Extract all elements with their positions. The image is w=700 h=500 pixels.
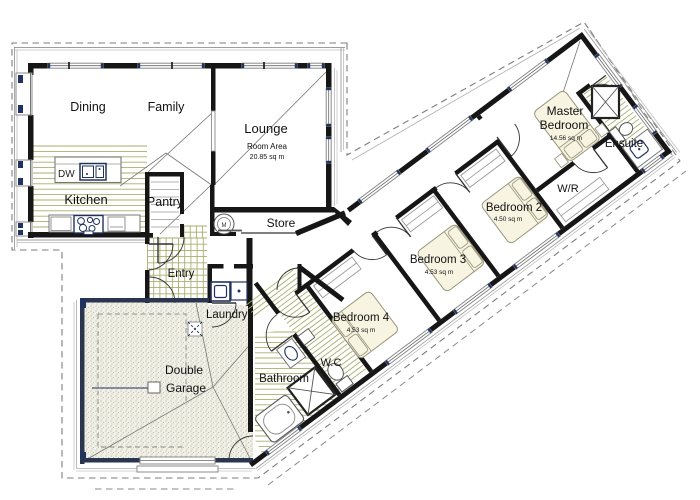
svg-text:Double: Double — [165, 363, 203, 377]
svg-text:Entry: Entry — [168, 268, 195, 280]
svg-text:DW: DW — [58, 169, 75, 180]
svg-text:Bedroom 4: Bedroom 4 — [333, 312, 390, 324]
svg-text:Garage: Garage — [166, 381, 206, 395]
svg-text:Kitchen: Kitchen — [64, 192, 107, 207]
svg-text:Bedroom 3: Bedroom 3 — [410, 254, 466, 266]
svg-text:Dining: Dining — [70, 100, 105, 114]
svg-text:Room Area: Room Area — [247, 142, 288, 151]
svg-text:Bedroom 2: Bedroom 2 — [486, 202, 542, 214]
svg-text:4.53 sq m: 4.53 sq m — [425, 269, 454, 276]
svg-text:M: M — [222, 223, 227, 229]
svg-text:W/R: W/R — [557, 183, 578, 195]
svg-text:4.53 sq m: 4.53 sq m — [347, 327, 376, 334]
svg-text:4.50 sq m: 4.50 sq m — [494, 216, 523, 223]
svg-text:Bedroom: Bedroom — [540, 118, 589, 132]
svg-text:Bathroom: Bathroom — [259, 373, 309, 385]
svg-text:Store: Store — [267, 216, 296, 230]
svg-text:20.85 sq m: 20.85 sq m — [250, 154, 285, 161]
svg-text:Ensuite: Ensuite — [605, 138, 643, 150]
svg-text:Family: Family — [148, 100, 186, 114]
svg-text:W.C: W.C — [321, 357, 342, 369]
svg-text:14.56 sq m: 14.56 sq m — [550, 135, 582, 142]
svg-text:Laundry: Laundry — [206, 309, 248, 321]
svg-text:Pantry: Pantry — [147, 195, 184, 209]
svg-text:Master: Master — [547, 104, 584, 118]
svg-text:Lounge: Lounge — [244, 121, 287, 136]
